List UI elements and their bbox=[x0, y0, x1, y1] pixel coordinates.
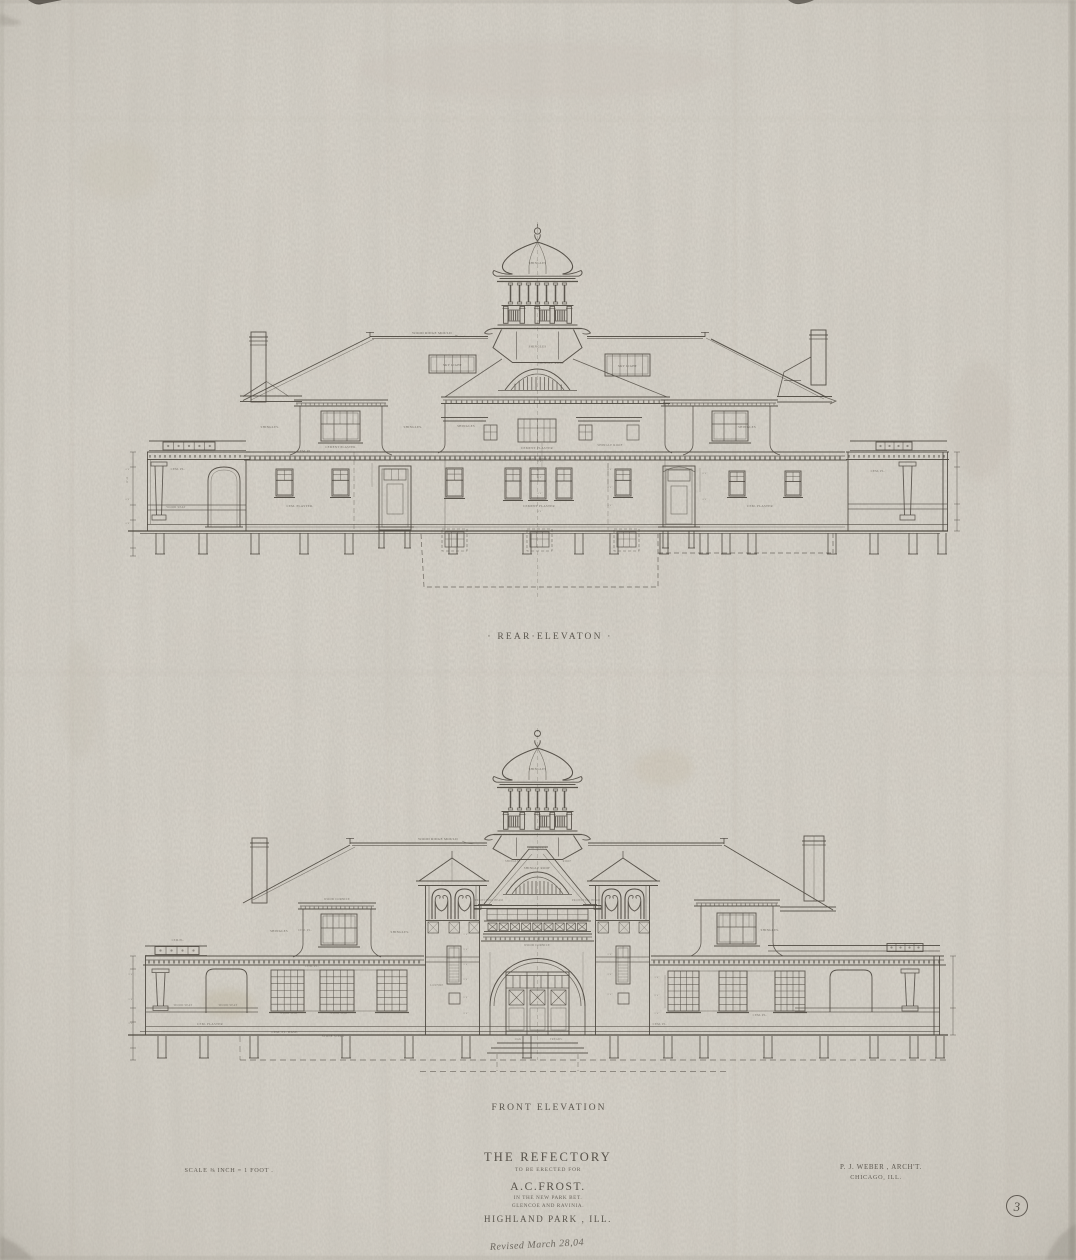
svg-text:9ʹ0ʺ: 9ʹ0ʺ bbox=[464, 978, 469, 981]
svg-text:9ʹ0ʺ: 9ʹ0ʺ bbox=[129, 1022, 134, 1025]
svg-text:SHINGLES.: SHINGLES. bbox=[761, 928, 780, 932]
svg-text:SHINGLES: SHINGLES bbox=[738, 425, 756, 429]
svg-text:PROJECTING BEAM: PROJECTING BEAM bbox=[572, 899, 601, 902]
svg-text:3: 3 bbox=[1013, 1199, 1021, 1214]
svg-text:WOOD RIDGE MOULD: WOOD RIDGE MOULD bbox=[418, 837, 458, 841]
svg-text:CEM. PLASTER: CEM. PLASTER bbox=[747, 504, 773, 508]
svg-text:9ʹ0ʺ: 9ʹ0ʺ bbox=[608, 953, 613, 956]
svg-text:8ʹ6ʺ: 8ʹ6ʺ bbox=[703, 472, 708, 475]
svg-text:WOOD CORNICE: WOOD CORNICE bbox=[524, 943, 550, 947]
svg-text:SHINGLES.: SHINGLES. bbox=[391, 930, 410, 934]
svg-text:WOOD RIDGE MOULD: WOOD RIDGE MOULD bbox=[412, 331, 452, 335]
svg-text:TO BE ERECTED FOR: TO BE ERECTED FOR bbox=[515, 1167, 581, 1173]
svg-text:8ʹ6ʺ: 8ʹ6ʺ bbox=[538, 476, 543, 479]
svg-text:SHINGLES: SHINGLES bbox=[529, 345, 547, 349]
svg-text:CEM. PLASTER.: CEM. PLASTER. bbox=[286, 504, 313, 508]
svg-text:SHINGLE ROOF: SHINGLE ROOF bbox=[538, 361, 565, 365]
svg-text:IN THE NEW PARK BET.: IN THE NEW PARK BET. bbox=[514, 1195, 582, 1201]
svg-text:THE REFECTORY: THE REFECTORY bbox=[484, 1150, 612, 1164]
svg-text:9ʹ0ʺ: 9ʹ0ʺ bbox=[464, 963, 469, 966]
svg-text:FRONT ELEVATION: FRONT ELEVATION bbox=[492, 1103, 607, 1113]
svg-text:9ʹ0ʺ: 9ʹ0ʺ bbox=[464, 1012, 469, 1015]
svg-text:9ʹ0ʺ: 9ʹ0ʺ bbox=[129, 973, 134, 976]
svg-text:CHICAGO, ILL.: CHICAGO, ILL. bbox=[850, 1174, 902, 1181]
svg-text:8ʹ6ʺ: 8ʹ6ʺ bbox=[608, 504, 613, 507]
svg-text:P. J. WEBER , ARCH'T.: P. J. WEBER , ARCH'T. bbox=[840, 1164, 922, 1171]
svg-text:9ʹ0ʺ: 9ʹ0ʺ bbox=[608, 973, 613, 976]
svg-text:8ʹ6ʺ: 8ʹ6ʺ bbox=[538, 510, 543, 513]
svg-text:ROOF: ROOF bbox=[563, 860, 572, 863]
svg-text:CEM. PL.: CEM. PL. bbox=[653, 1022, 668, 1026]
svg-text:SKY LIGHT: SKY LIGHT bbox=[618, 364, 637, 368]
svg-text:SCALE ⅜ INCH = 1 FOOT .: SCALE ⅜ INCH = 1 FOOT . bbox=[185, 1167, 274, 1174]
svg-text:SKY LIGHT: SKY LIGHT bbox=[443, 363, 462, 367]
svg-text:LOUVRE: LOUVRE bbox=[430, 984, 443, 987]
svg-text:9ʹ0ʺ: 9ʹ0ʺ bbox=[129, 998, 134, 1001]
svg-text:· REAR·ELEVATON ·: · REAR·ELEVATON · bbox=[487, 632, 612, 642]
svg-text:GLENCOE AND RAVINIA.: GLENCOE AND RAVINIA. bbox=[512, 1203, 584, 1209]
svg-text:8ʹ6ʺ: 8ʹ6ʺ bbox=[126, 468, 131, 471]
svg-text:SHINGLES: SHINGLES bbox=[270, 929, 288, 933]
svg-text:SHINGLES: SHINGLES bbox=[529, 846, 547, 850]
svg-text:9ʹ0ʺ: 9ʹ0ʺ bbox=[655, 994, 660, 997]
svg-text:CEM. PL.: CEM. PL. bbox=[298, 929, 312, 932]
svg-text:9ʹ0ʺ: 9ʹ0ʺ bbox=[655, 1012, 660, 1015]
svg-text:WOOD SEAT: WOOD SEAT bbox=[330, 1012, 348, 1015]
svg-text:9ʹ0ʺ: 9ʹ0ʺ bbox=[608, 993, 613, 996]
svg-text:SHINGLE ROOF: SHINGLE ROOF bbox=[524, 866, 551, 870]
svg-text:CEM. PLASTER: CEM. PLASTER bbox=[197, 1022, 223, 1026]
svg-text:WOOD SEAT: WOOD SEAT bbox=[174, 1004, 193, 1007]
svg-text:CEM. PL. BASE.: CEM. PL. BASE. bbox=[272, 1030, 299, 1034]
svg-text:8ʹ6ʺ: 8ʹ6ʺ bbox=[126, 522, 131, 525]
svg-text:CEM. PL.: CEM. PL. bbox=[305, 965, 319, 968]
svg-text:SHINGLE: SHINGLE bbox=[505, 860, 519, 863]
svg-text:SHINGLES: SHINGLES bbox=[457, 424, 475, 428]
svg-text:8ʹ6ʺ: 8ʹ6ʺ bbox=[703, 498, 708, 501]
svg-text:TREADS: TREADS bbox=[550, 1038, 562, 1041]
svg-text:SHINGLES.: SHINGLES. bbox=[404, 425, 423, 429]
svg-text:CEMENT PLASTER.: CEMENT PLASTER. bbox=[325, 445, 356, 449]
svg-text:9ʹ0ʺ: 9ʹ0ʺ bbox=[464, 933, 469, 936]
svg-text:WOOD SEAT: WOOD SEAT bbox=[219, 1004, 238, 1007]
svg-text:HIGHLAND PARK , ILL.: HIGHLAND PARK , ILL. bbox=[484, 1214, 612, 1224]
svg-text:8ʹ6ʺ: 8ʹ6ʺ bbox=[608, 468, 613, 471]
svg-text:CEM. PL.: CEM. PL. bbox=[871, 469, 886, 473]
svg-text:SHINGLE ROOF: SHINGLE ROOF bbox=[597, 443, 622, 447]
svg-text:SHINGLES: SHINGLES bbox=[529, 261, 547, 265]
svg-text:CEM. PL.: CEM. PL. bbox=[298, 449, 313, 453]
svg-text:A.C.FROST.: A.C.FROST. bbox=[510, 1181, 586, 1193]
svg-text:WOOD CORNICE: WOOD CORNICE bbox=[324, 897, 350, 901]
svg-text:SHINGLES.: SHINGLES. bbox=[261, 425, 280, 429]
svg-text:9ʹ0ʺ: 9ʹ0ʺ bbox=[655, 976, 660, 979]
svg-text:9'-0: 9'-0 bbox=[125, 477, 129, 483]
svg-text:CEM. PL.: CEM. PL. bbox=[753, 1013, 768, 1017]
svg-text:CEM. PL.: CEM. PL. bbox=[171, 467, 186, 471]
svg-text:8ʹ6ʺ: 8ʹ6ʺ bbox=[538, 460, 543, 463]
svg-text:8ʹ6ʺ: 8ʹ6ʺ bbox=[538, 492, 543, 495]
svg-text:SHINGLES: SHINGLES bbox=[529, 767, 547, 771]
svg-text:8ʹ6ʺ: 8ʹ6ʺ bbox=[126, 498, 131, 501]
svg-text:8ʹ6ʺ: 8ʹ6ʺ bbox=[608, 486, 613, 489]
svg-text:CEMENT PLASTER: CEMENT PLASTER bbox=[521, 446, 553, 450]
svg-text:WOOD SEAT: WOOD SEAT bbox=[280, 1012, 298, 1015]
svg-text:WOOD SEAT: WOOD SEAT bbox=[166, 505, 185, 509]
svg-text:9ʹ0ʺ: 9ʹ0ʺ bbox=[464, 996, 469, 999]
svg-text:CEMENT PLASTER: CEMENT PLASTER bbox=[523, 504, 555, 508]
svg-text:CEM.PL.: CEM.PL. bbox=[172, 939, 185, 942]
svg-text:OAK: OAK bbox=[515, 1038, 522, 1041]
svg-text:9ʹ0ʺ: 9ʹ0ʺ bbox=[464, 948, 469, 951]
